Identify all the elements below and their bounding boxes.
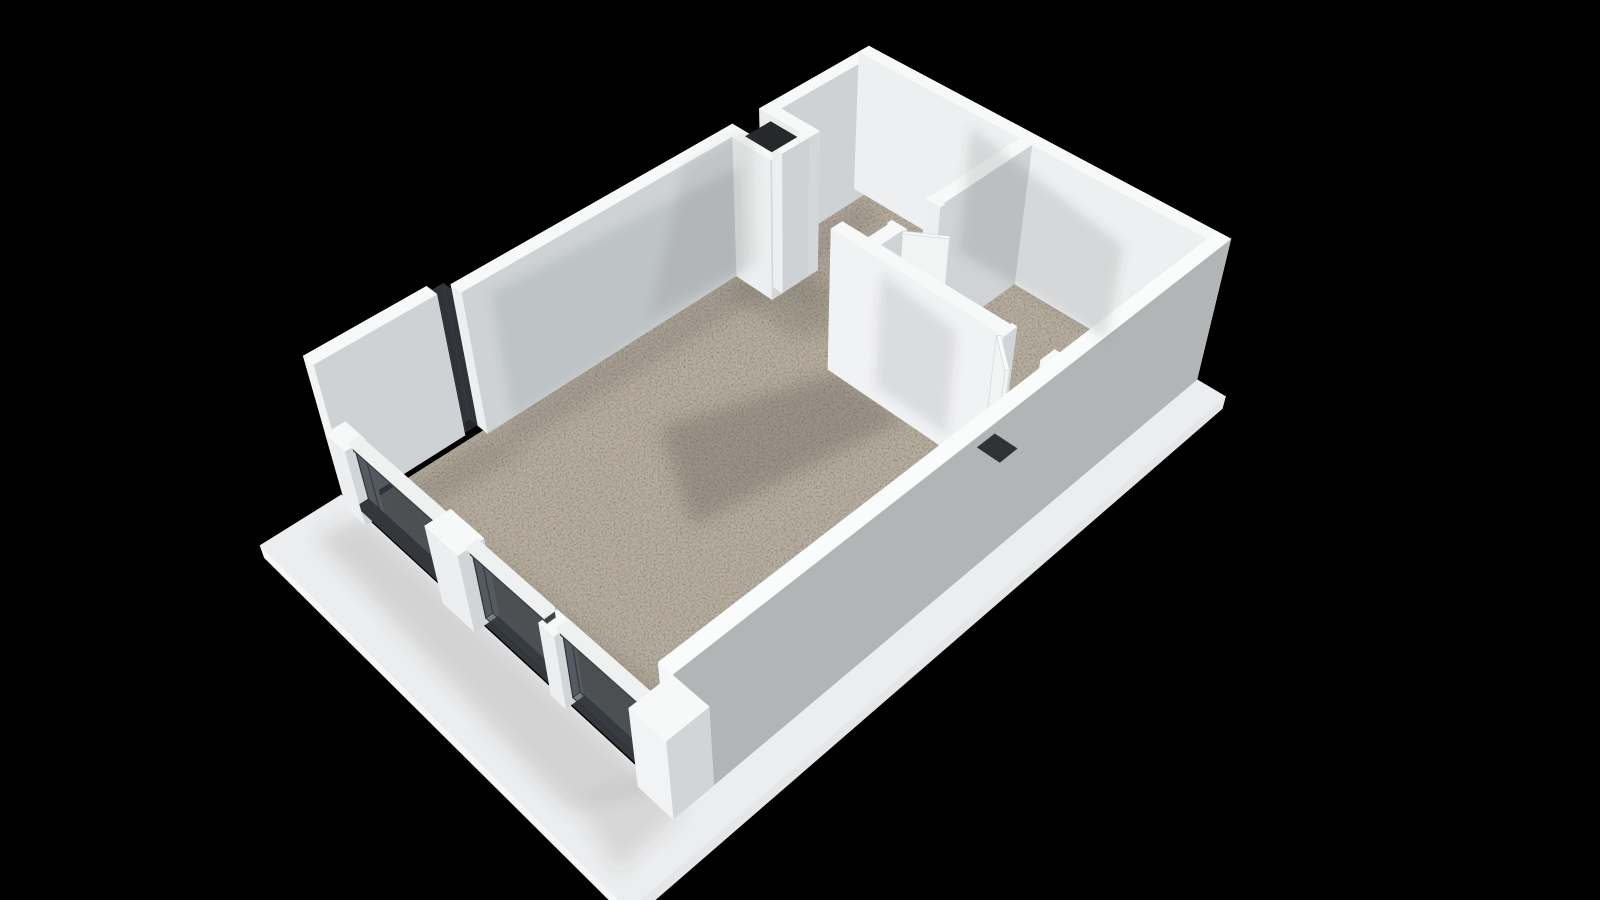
- render-stage: 3D floor plan render — one-bedroom apart…: [0, 0, 1600, 900]
- shaft-front: [772, 132, 809, 293]
- floorplan-3d-viewport[interactable]: [0, 0, 1600, 900]
